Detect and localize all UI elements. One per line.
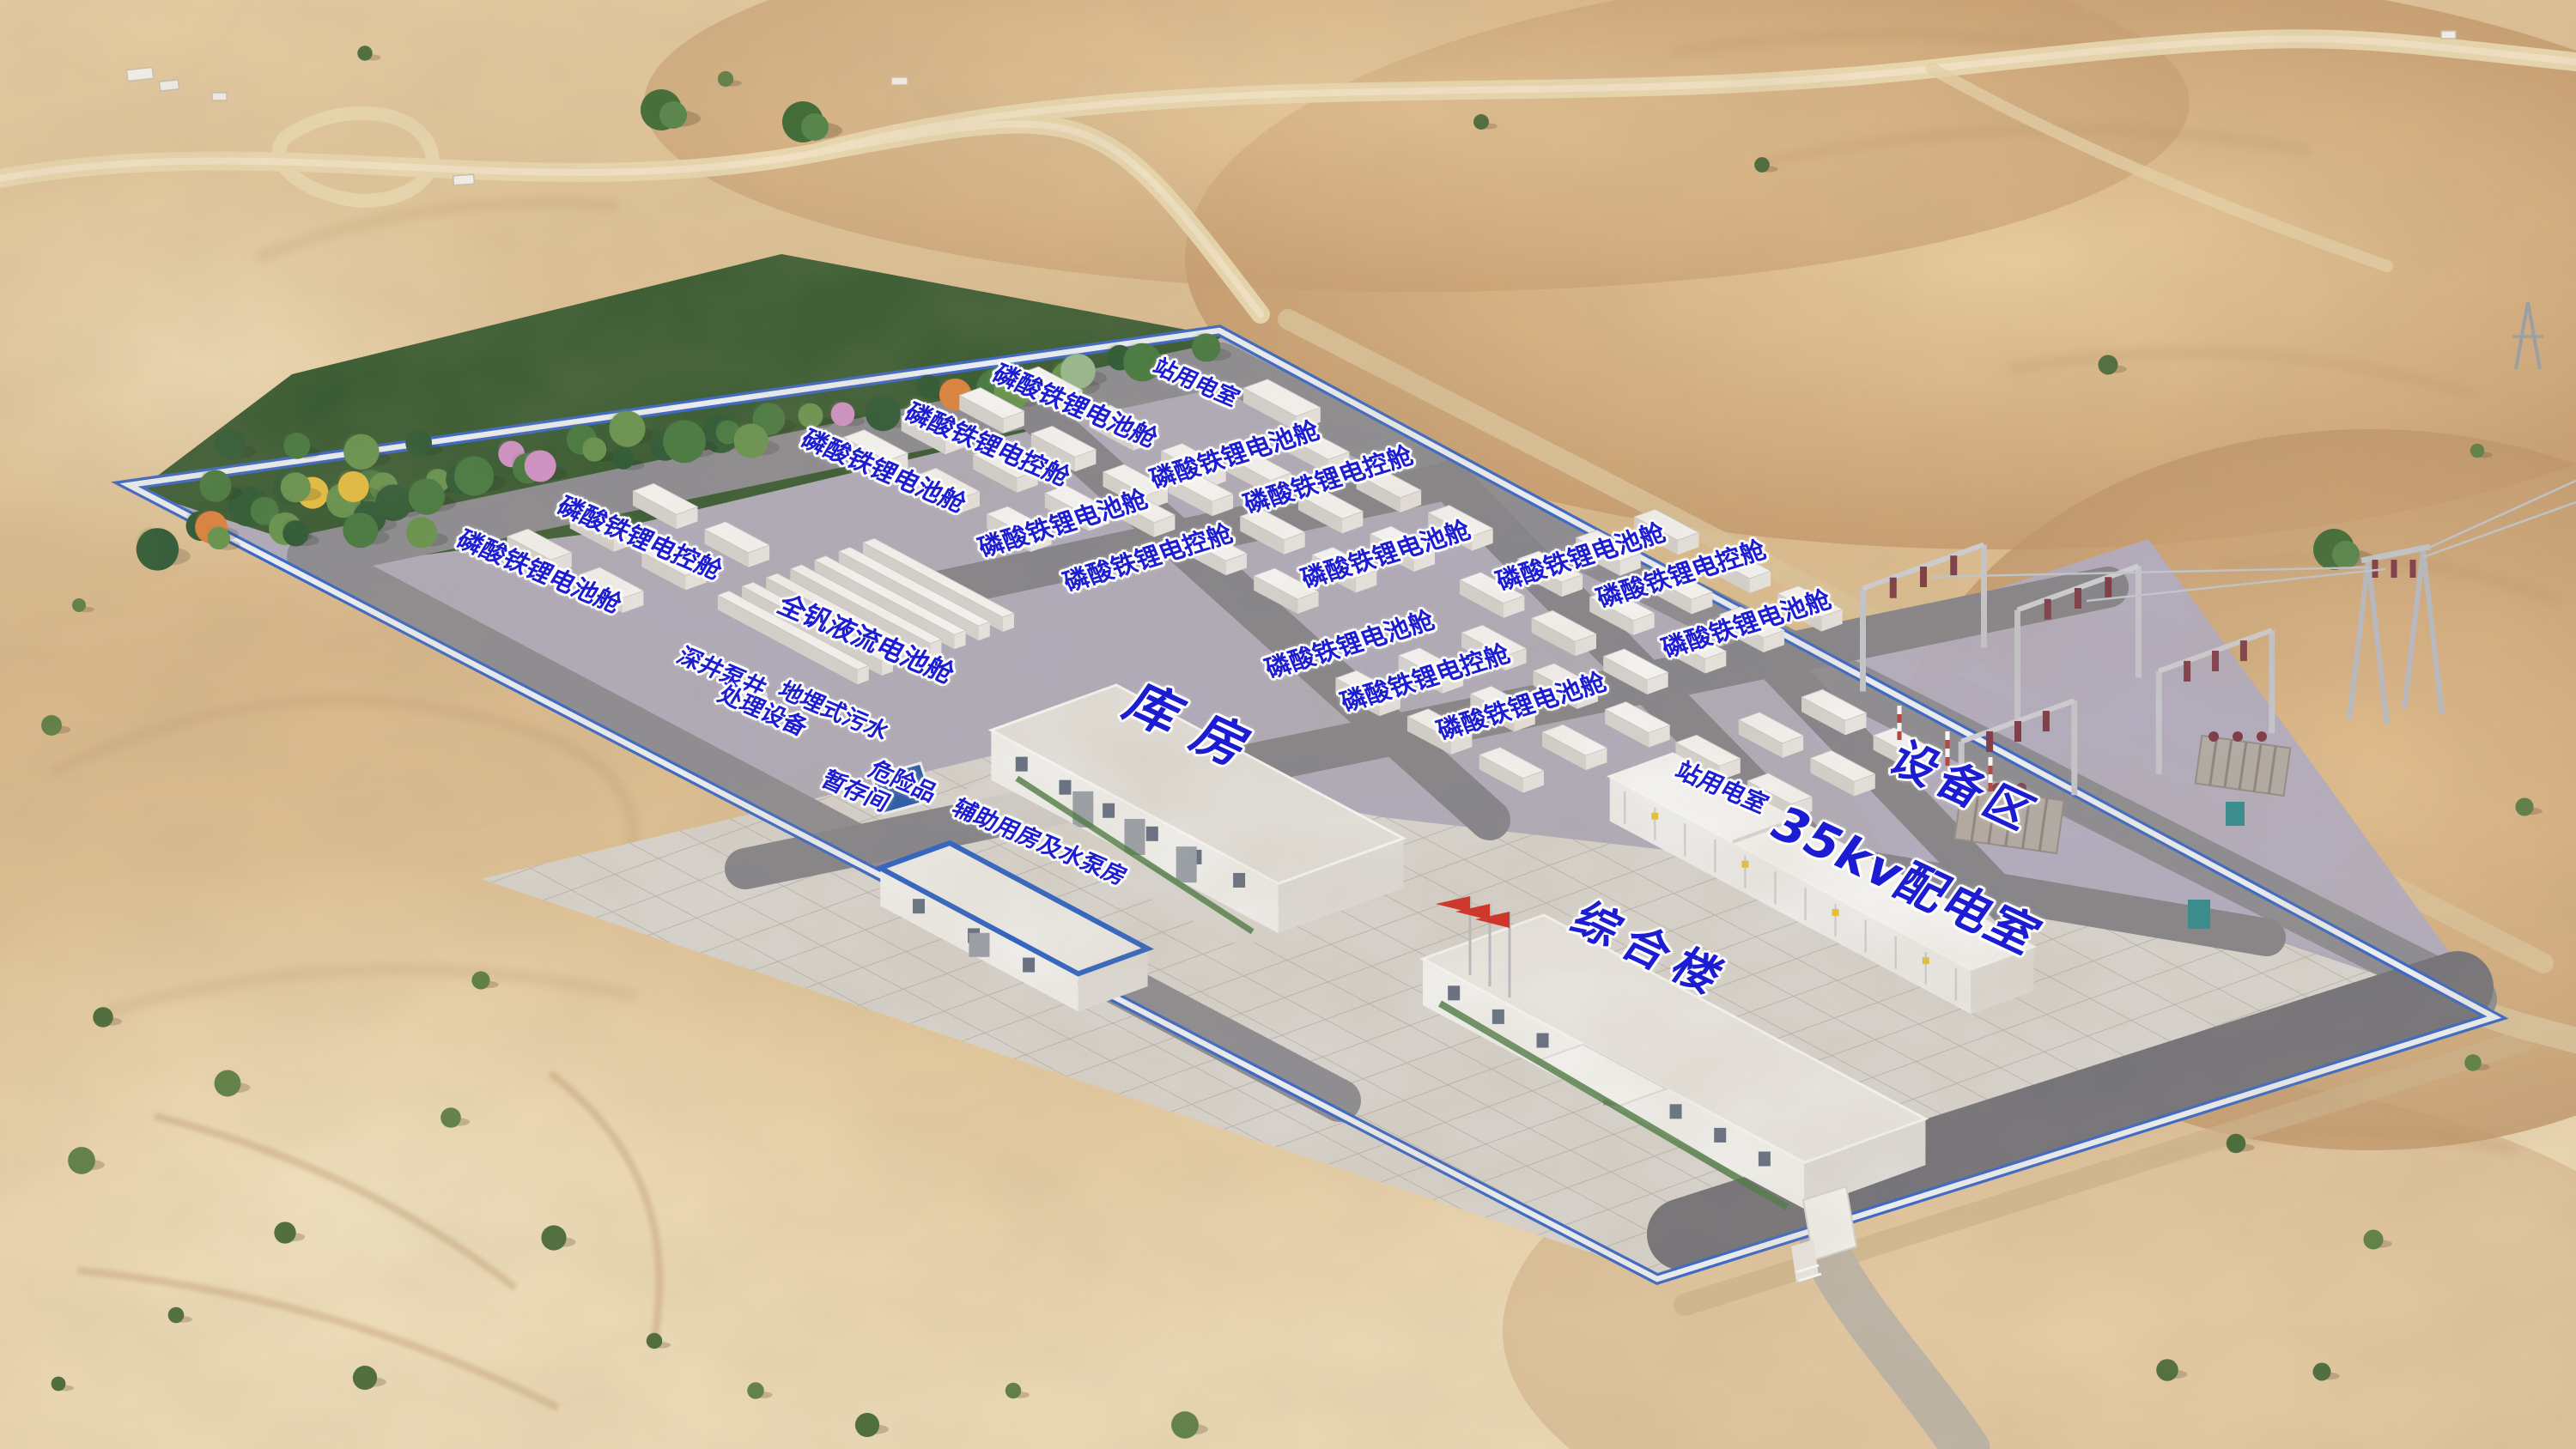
sand-grain-overlay: [0, 0, 2576, 1449]
aerial-rendering-stage: 站用电室 磷酸铁锂电池舱 磷酸铁锂电控舱 磷酸铁锂电池舱 磷酸铁锂电控舱 磷酸铁…: [0, 0, 2576, 1449]
scene-canvas: [0, 0, 2576, 1449]
